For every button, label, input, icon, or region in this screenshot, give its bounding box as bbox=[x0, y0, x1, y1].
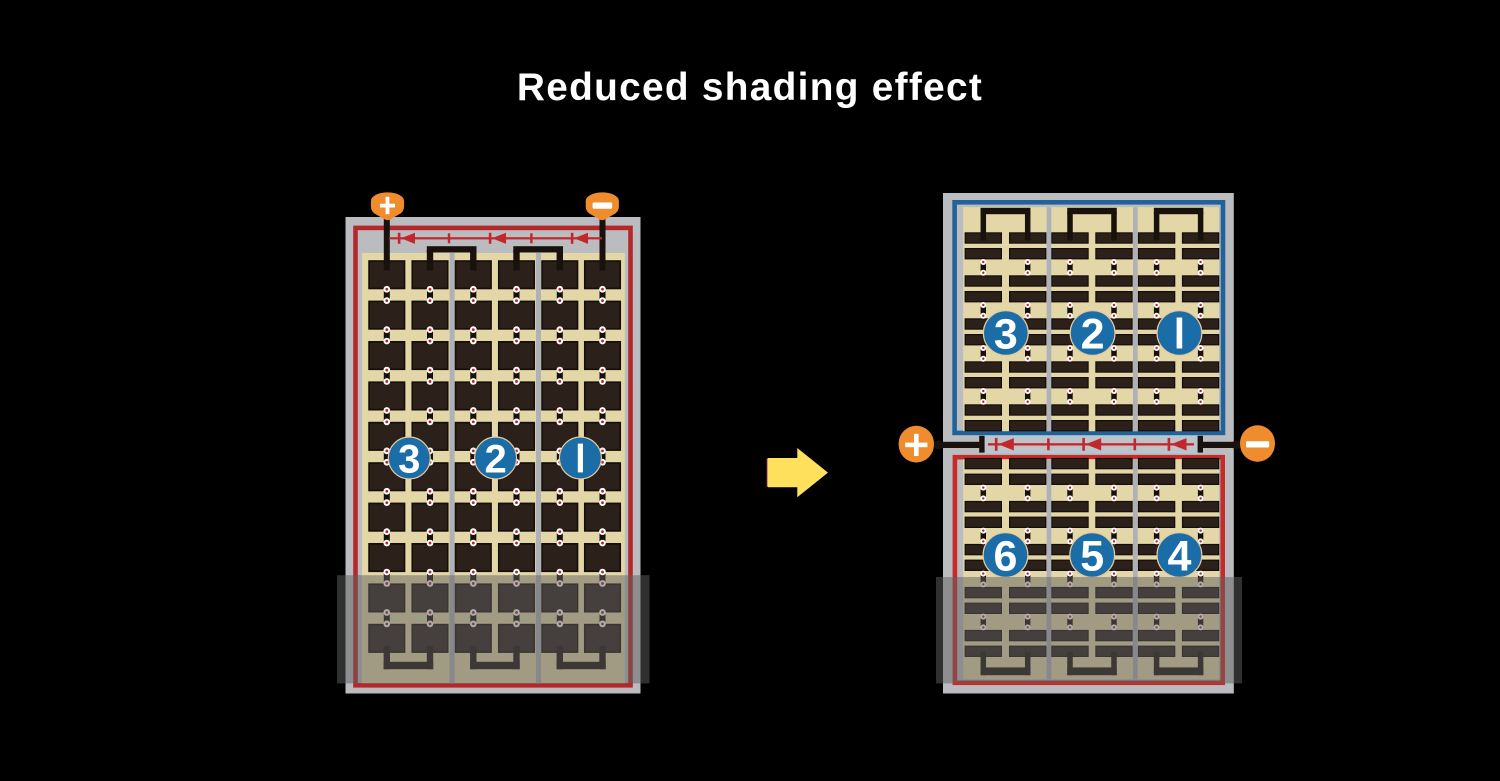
svg-text:6: 6 bbox=[994, 533, 1018, 581]
svg-text:3: 3 bbox=[994, 311, 1018, 359]
svg-text:5: 5 bbox=[1080, 533, 1104, 581]
svg-text:4: 4 bbox=[1167, 533, 1191, 581]
svg-text:2: 2 bbox=[1081, 311, 1105, 359]
svg-text:2: 2 bbox=[484, 438, 506, 482]
svg-text:3: 3 bbox=[398, 438, 420, 482]
svg-text:Reduced shading effect: Reduced shading effect bbox=[517, 66, 983, 109]
